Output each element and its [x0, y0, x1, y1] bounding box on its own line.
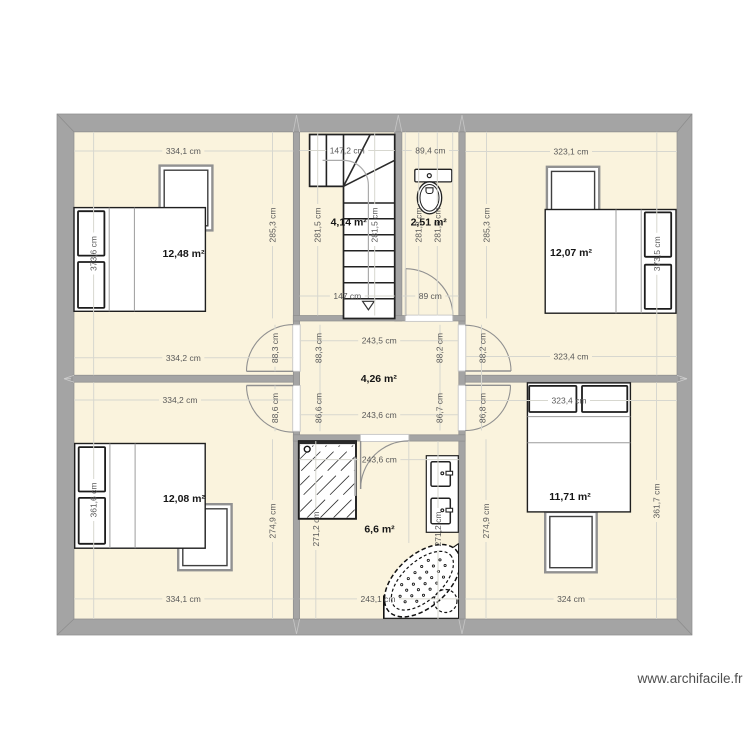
svg-text:271,2 cm: 271,2 cm [433, 512, 443, 547]
svg-text:88,2 cm: 88,2 cm [478, 333, 488, 363]
svg-text:334,2 cm: 334,2 cm [166, 353, 201, 363]
svg-text:89 cm: 89 cm [419, 291, 442, 301]
svg-text:243,1 cm: 243,1 cm [361, 594, 396, 604]
svg-text:281,5 cm: 281,5 cm [313, 208, 323, 243]
svg-text:334,1 cm: 334,1 cm [166, 594, 201, 604]
svg-text:86,6 cm: 86,6 cm [314, 393, 324, 423]
svg-text:274,9 cm: 274,9 cm [268, 504, 278, 539]
svg-text:86,7 cm: 86,7 cm [435, 393, 445, 423]
svg-text:274,9 cm: 274,9 cm [481, 504, 491, 539]
svg-text:88,3 cm: 88,3 cm [270, 333, 280, 363]
svg-text:www.archifacile.fr: www.archifacile.fr [636, 671, 743, 686]
svg-text:271,2 cm: 271,2 cm [311, 512, 321, 547]
svg-text:285,3 cm: 285,3 cm [268, 208, 278, 243]
svg-text:281,5 cm: 281,5 cm [370, 208, 380, 243]
svg-text:334,2 cm: 334,2 cm [163, 395, 198, 405]
svg-text:12,07 m²: 12,07 m² [550, 247, 593, 259]
svg-text:285,3 cm: 285,3 cm [482, 208, 492, 243]
svg-text:243,5 cm: 243,5 cm [362, 336, 397, 346]
svg-text:323,4 cm: 323,4 cm [552, 396, 587, 406]
svg-text:324 cm: 324 cm [557, 594, 585, 604]
svg-text:334,1 cm: 334,1 cm [166, 146, 201, 156]
svg-text:4,14 m²: 4,14 m² [331, 217, 368, 229]
svg-text:88,2 cm: 88,2 cm [435, 333, 445, 363]
svg-text:2,51 m²: 2,51 m² [411, 217, 448, 229]
svg-text:88,6 cm: 88,6 cm [270, 393, 280, 423]
svg-text:373,6 cm: 373,6 cm [89, 236, 99, 271]
svg-text:6,6 m²: 6,6 m² [364, 524, 395, 536]
svg-text:361,6 cm: 361,6 cm [89, 483, 99, 518]
svg-text:243,6 cm: 243,6 cm [362, 410, 397, 420]
svg-text:88,3 cm: 88,3 cm [314, 333, 324, 363]
svg-text:12,08 m²: 12,08 m² [163, 493, 206, 505]
svg-text:4,26 m²: 4,26 m² [361, 373, 398, 385]
svg-text:323,1 cm: 323,1 cm [554, 147, 589, 157]
svg-text:243,6 cm: 243,6 cm [362, 455, 397, 465]
svg-text:89,4 cm: 89,4 cm [415, 146, 445, 156]
svg-text:147,2 cm: 147,2 cm [330, 146, 365, 156]
svg-text:86,8 cm: 86,8 cm [478, 393, 488, 423]
svg-text:361,7 cm: 361,7 cm [652, 484, 662, 519]
svg-text:147 cm: 147 cm [333, 291, 361, 301]
svg-text:323,4 cm: 323,4 cm [554, 352, 589, 362]
svg-text:12,48 m²: 12,48 m² [162, 248, 205, 260]
svg-text:11,71 m²: 11,71 m² [549, 491, 591, 503]
svg-text:373,5 cm: 373,5 cm [652, 236, 662, 271]
